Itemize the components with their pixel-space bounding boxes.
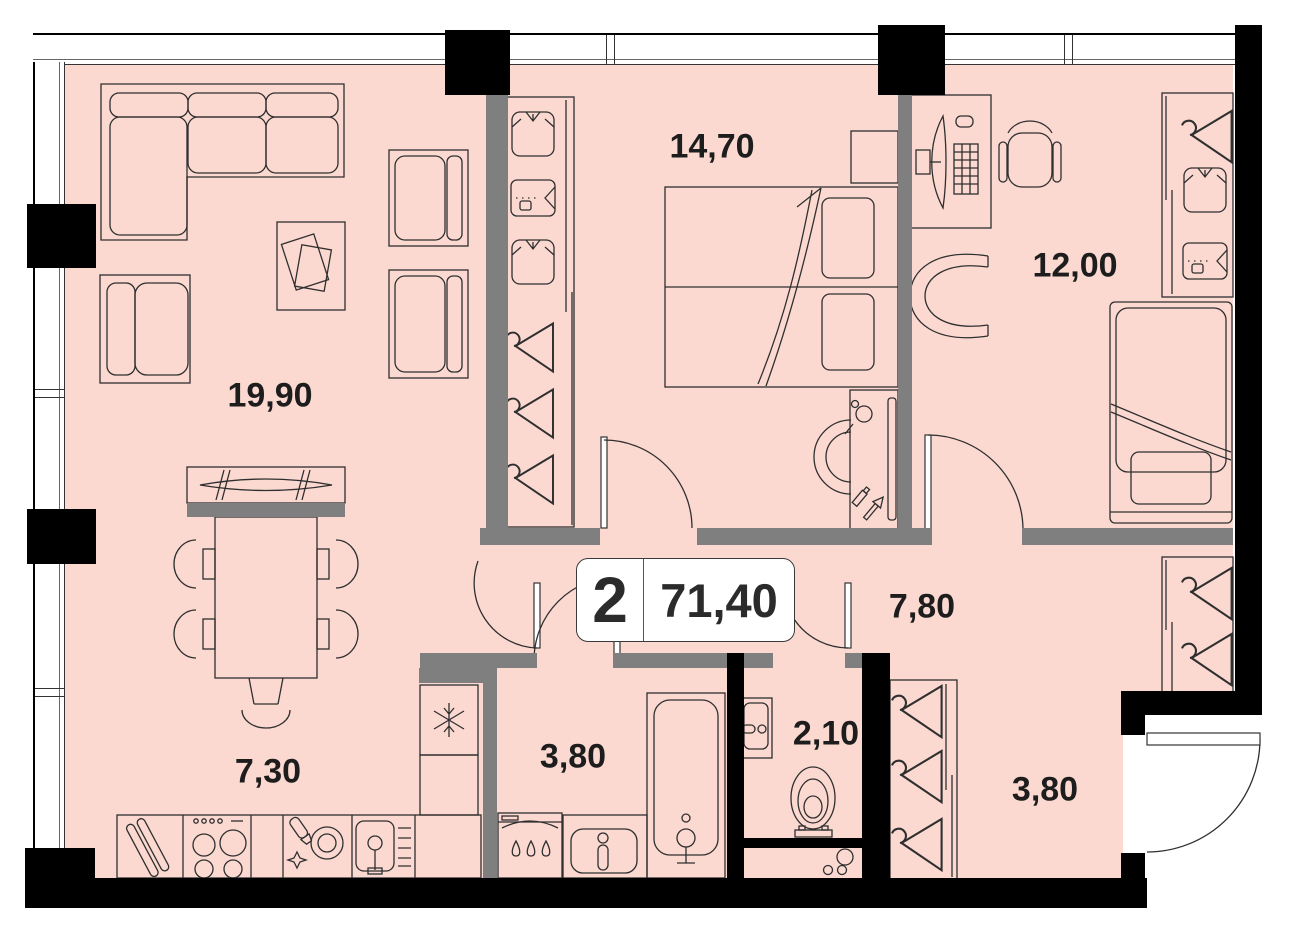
coffee-table-icon bbox=[277, 222, 345, 310]
column bbox=[27, 509, 96, 564]
area-label-wc: 2,10 bbox=[793, 715, 859, 754]
refrigerator-icon bbox=[420, 685, 478, 755]
column bbox=[27, 204, 96, 268]
wall-interior bbox=[697, 528, 932, 545]
wardrobe-icon bbox=[1162, 557, 1233, 695]
utility-shaft-icon bbox=[824, 849, 854, 875]
toilet-icon bbox=[791, 767, 835, 837]
floor-plan-canvas: 19,90 14,70 12,00 7,80 7,30 3,80 2,10 3,… bbox=[0, 0, 1293, 936]
wall-interior-black bbox=[727, 653, 744, 878]
console-table-icon bbox=[187, 467, 345, 503]
wall-interior bbox=[480, 528, 600, 545]
wall-interior bbox=[898, 63, 912, 529]
wall-exterior-right bbox=[1235, 25, 1262, 715]
area-label-living-room: 19,90 bbox=[227, 377, 312, 416]
wall-exterior bbox=[25, 848, 95, 908]
wall-exterior bbox=[1121, 691, 1239, 715]
armchair-icon bbox=[100, 275, 190, 383]
area-label-office: 12,00 bbox=[1032, 247, 1117, 286]
wall-interior-black bbox=[862, 653, 890, 878]
dining-table-icon bbox=[215, 517, 317, 678]
area-label-bathroom: 3,80 bbox=[540, 738, 606, 777]
chair-icon bbox=[174, 540, 358, 728]
column bbox=[445, 30, 510, 95]
dishwashing-icon bbox=[288, 816, 343, 868]
washing-machine-icon bbox=[498, 813, 562, 878]
furniture-layer bbox=[0, 0, 1293, 936]
door-office bbox=[925, 435, 1023, 530]
wall-interior bbox=[420, 653, 537, 668]
unit-rooms-count: 2 bbox=[577, 559, 644, 641]
armchair-icon bbox=[910, 254, 988, 337]
armchair-icon bbox=[389, 270, 468, 378]
bathtub-icon bbox=[647, 693, 725, 878]
stove-icon bbox=[193, 819, 246, 878]
washbasin-icon bbox=[563, 815, 647, 878]
area-label-bedroom: 14,70 bbox=[669, 128, 754, 167]
wardrobe-icon bbox=[890, 680, 957, 880]
sink-icon bbox=[356, 821, 411, 874]
area-label-hallway: 7,80 bbox=[889, 588, 955, 627]
armchair-icon bbox=[389, 150, 468, 246]
vanity-table-icon bbox=[845, 390, 898, 530]
wall-interior bbox=[419, 668, 483, 683]
cutting-board-icon bbox=[125, 817, 170, 878]
area-label-kitchen: 7,30 bbox=[235, 753, 301, 792]
chair-icon bbox=[814, 420, 851, 494]
column bbox=[878, 25, 945, 95]
wall-interior bbox=[187, 503, 345, 517]
wall-exterior-bottom bbox=[95, 878, 1147, 908]
hand-basin-icon bbox=[740, 698, 772, 758]
door-entrance bbox=[1147, 733, 1260, 852]
door-bedroom bbox=[601, 437, 692, 528]
double-bed-icon bbox=[665, 187, 898, 387]
wall-interior bbox=[486, 95, 508, 528]
wall-interior bbox=[845, 653, 862, 668]
wall-interior bbox=[744, 653, 773, 668]
desk-icon bbox=[911, 95, 991, 228]
area-label-entry-hall: 3,80 bbox=[1012, 771, 1078, 810]
wall-interior bbox=[613, 653, 727, 668]
wardrobe-icon bbox=[1162, 93, 1233, 297]
office-chair-icon bbox=[999, 121, 1061, 187]
wall-interior-black bbox=[744, 838, 862, 848]
wall-interior bbox=[483, 668, 497, 883]
door-living-room bbox=[474, 561, 540, 648]
single-bed-icon bbox=[1110, 302, 1232, 523]
wardrobe-icon bbox=[507, 97, 575, 527]
wall-interior bbox=[1022, 528, 1233, 545]
kitchen-counter-icon bbox=[117, 815, 481, 878]
nightstand-icon bbox=[851, 131, 898, 183]
corner-sofa-icon bbox=[101, 84, 344, 240]
wall-exterior bbox=[1121, 715, 1145, 735]
unit-total-area: 71,40 bbox=[644, 559, 794, 641]
unit-info-card: 2 71,40 bbox=[576, 558, 795, 642]
kitchen-cabinet-icon bbox=[420, 755, 478, 815]
